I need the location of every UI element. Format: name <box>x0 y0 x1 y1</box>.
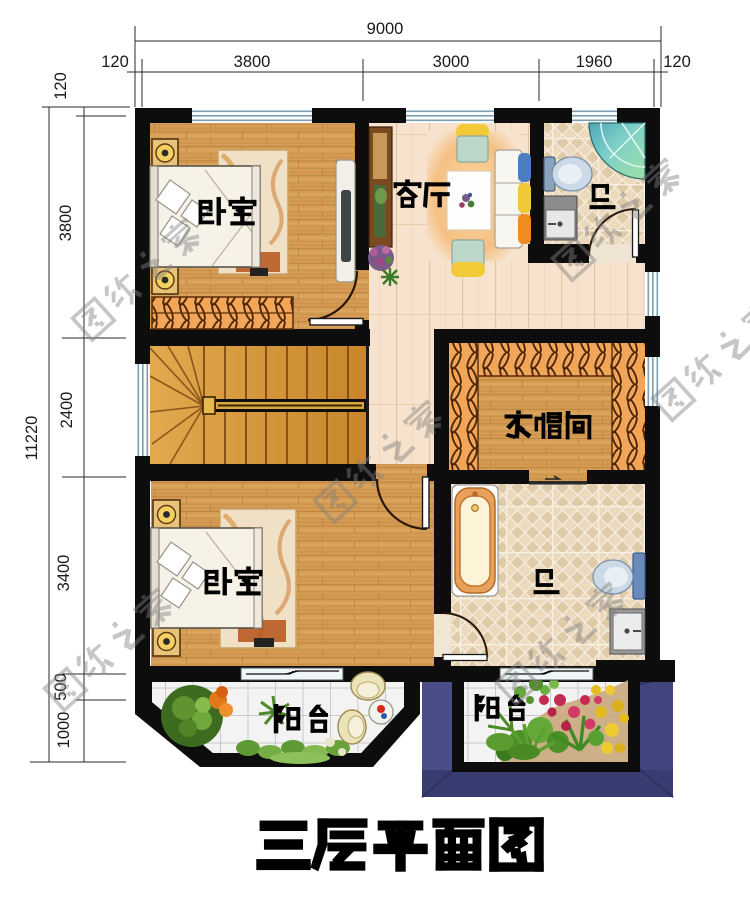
svg-text:3000: 3000 <box>433 53 470 71</box>
svg-text:120: 120 <box>52 72 70 100</box>
svg-text:11220: 11220 <box>23 416 41 461</box>
svg-text:3400: 3400 <box>55 555 73 592</box>
svg-text:3800: 3800 <box>234 53 271 71</box>
svg-text:1960: 1960 <box>576 53 613 71</box>
svg-text:9000: 9000 <box>367 20 404 38</box>
svg-text:2400: 2400 <box>58 392 76 429</box>
svg-text:1000: 1000 <box>55 712 73 749</box>
svg-text:120: 120 <box>663 53 691 71</box>
svg-text:3800: 3800 <box>57 205 75 242</box>
svg-text:120: 120 <box>101 53 129 71</box>
